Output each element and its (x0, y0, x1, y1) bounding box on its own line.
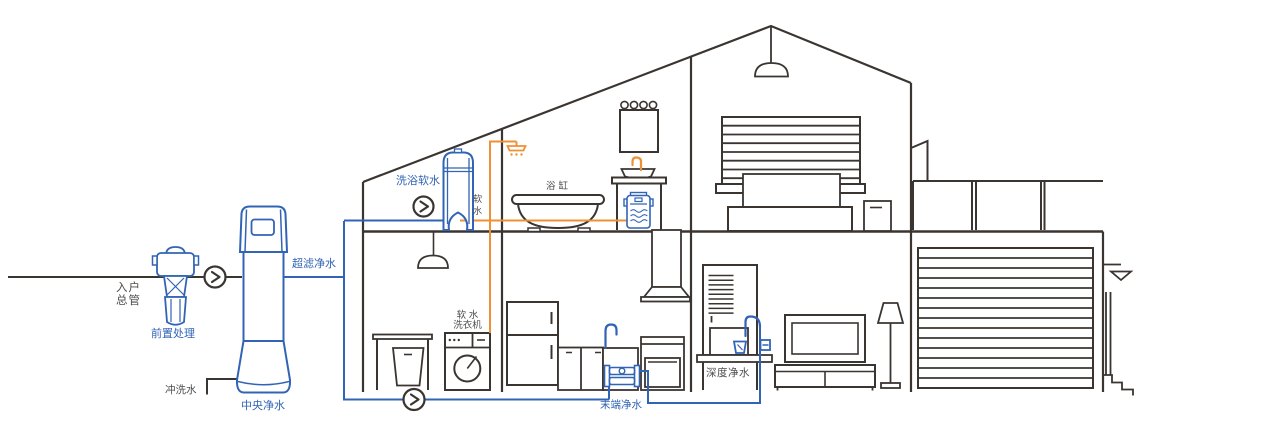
nightstand (864, 201, 891, 231)
dispenser-cup (734, 342, 746, 354)
terrace-railing (911, 141, 1103, 230)
central-purifier (237, 207, 290, 393)
bath-softener-label: 洗浴软水 (396, 175, 440, 187)
water-softener (444, 149, 474, 230)
central-purifier-label: 中央净水 (241, 400, 285, 412)
floor-lamp (878, 303, 903, 388)
kitchen-faucet (606, 325, 617, 348)
pre-treatment-label: 前置处理 (151, 328, 195, 340)
flow-arrow-icon (414, 197, 434, 217)
under-sink-heater (624, 193, 653, 229)
shower-head (508, 142, 526, 156)
terminal-purifier-label: 末端净水 (600, 400, 642, 412)
mirror-lights (621, 101, 657, 108)
fridge (507, 302, 558, 385)
pendant-lamp-bedroom (755, 26, 788, 77)
flow-arrow-icon (404, 389, 425, 410)
pre-filter (153, 247, 199, 325)
flow-arrow-icon (205, 267, 226, 288)
tv (785, 315, 865, 362)
bathtub (512, 195, 604, 232)
bed (728, 174, 852, 231)
bathtub-label: 浴缸 (546, 182, 571, 193)
downspout (1103, 265, 1133, 396)
tv-stand (775, 365, 875, 391)
house-water-diagram: 入户 总管 前置处理 超滤净水 冲洗水 中央净水 洗浴软水 软水 浴缸 软 水 … (0, 0, 1280, 434)
laundry-basket (393, 348, 424, 386)
garage-door (918, 248, 1093, 388)
flush-drain-pipe (207, 379, 240, 395)
ultrafiltration-label: 超滤净水 (292, 258, 336, 270)
washing-machine (445, 333, 490, 390)
deep-purifier-label: 深度净水 (706, 368, 750, 380)
mirror (620, 110, 658, 152)
soft-water-washer-label: 软 水 洗衣机 (449, 311, 486, 331)
soft-water-label: 软水 (472, 194, 482, 218)
flush-water-label: 冲洗水 (165, 385, 197, 397)
pendant-lamp-laundry (418, 232, 448, 268)
inlet-main-label: 入户 总管 (116, 282, 146, 307)
range-hood (641, 230, 690, 302)
diagram-artwork (0, 0, 1280, 434)
